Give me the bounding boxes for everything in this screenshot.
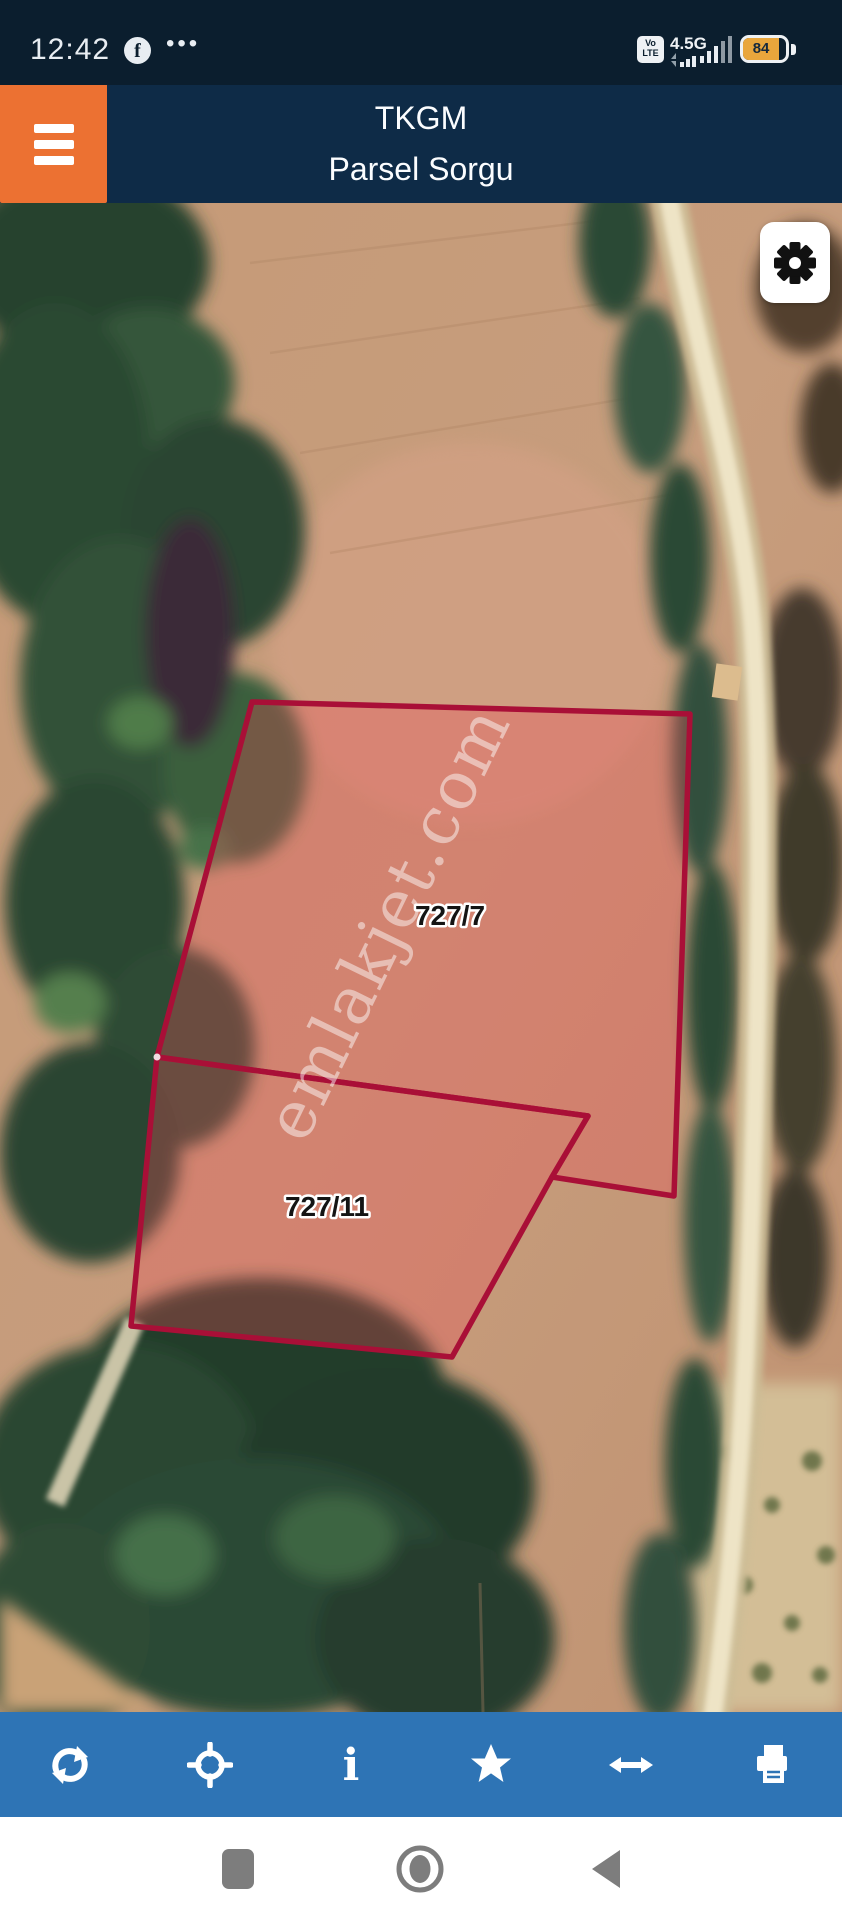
back-icon bbox=[586, 1847, 626, 1891]
signal-strength-icon bbox=[700, 36, 734, 63]
satellite-map[interactable]: emlakjet.com 727/7 727/11 bbox=[0, 203, 842, 1712]
clock: 12:42 bbox=[30, 33, 110, 67]
locate-icon bbox=[187, 1742, 233, 1788]
map-toolbar: i bbox=[0, 1712, 842, 1817]
resize-horizontal-icon bbox=[607, 1741, 655, 1789]
recents-icon bbox=[218, 1847, 258, 1891]
home-button[interactable] bbox=[360, 1817, 480, 1920]
roadside-structure bbox=[712, 663, 742, 700]
app-title: TKGM bbox=[375, 100, 467, 137]
header-titles: TKGM Parsel Sorgu bbox=[107, 85, 735, 203]
volte-icon: Vo LTE bbox=[637, 36, 664, 63]
favorite-button[interactable] bbox=[421, 1712, 561, 1817]
data-activity-icon bbox=[668, 53, 698, 67]
status-bar: 12:42 f ••• Vo LTE 4.5G 84 bbox=[0, 0, 842, 85]
recents-button[interactable] bbox=[178, 1817, 298, 1920]
refresh-icon bbox=[47, 1742, 93, 1788]
print-icon bbox=[748, 1741, 796, 1789]
star-icon bbox=[466, 1740, 516, 1790]
screen-title: Parsel Sorgu bbox=[329, 151, 514, 188]
locate-button[interactable] bbox=[140, 1712, 280, 1817]
parcel-label-727-11: 727/11 bbox=[285, 1191, 369, 1222]
refresh-button[interactable] bbox=[0, 1712, 140, 1817]
more-notifications-icon: ••• bbox=[166, 30, 200, 58]
android-navigation-bar bbox=[0, 1817, 842, 1920]
battery-icon: 84 bbox=[740, 35, 789, 63]
battery-nub bbox=[791, 44, 796, 55]
back-button[interactable] bbox=[546, 1817, 666, 1920]
info-icon: i bbox=[328, 1742, 374, 1788]
parcel-corner-marker bbox=[154, 1054, 161, 1061]
app-header: TKGM Parsel Sorgu bbox=[0, 85, 842, 203]
print-button[interactable] bbox=[702, 1712, 842, 1817]
settings-button[interactable] bbox=[760, 222, 830, 303]
hamburger-icon bbox=[34, 124, 74, 133]
gear-icon bbox=[771, 239, 819, 287]
facebook-notification-icon: f bbox=[124, 37, 151, 64]
hamburger-menu-button[interactable] bbox=[0, 85, 107, 203]
battery-level: 84 bbox=[743, 38, 779, 60]
map-canvas[interactable]: emlakjet.com 727/7 727/11 bbox=[0, 203, 842, 1712]
svg-text:i: i bbox=[342, 1742, 359, 1788]
info-button[interactable]: i bbox=[281, 1712, 421, 1817]
home-icon bbox=[394, 1843, 446, 1895]
measure-width-button[interactable] bbox=[561, 1712, 701, 1817]
parcel-label-727-7: 727/7 bbox=[415, 900, 485, 931]
